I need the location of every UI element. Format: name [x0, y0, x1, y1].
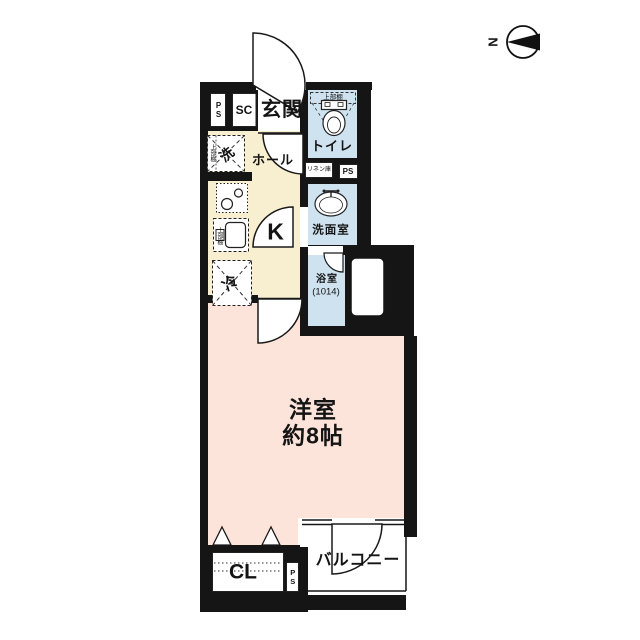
north-label: N — [487, 37, 500, 46]
hall-label: ホール — [252, 154, 294, 167]
wall-bottom — [308, 595, 406, 610]
balcony-label: バルコニー — [316, 553, 401, 569]
floor-plan: 玄関 SC PS 上部棚 トイレ リネン庫 PS 洗 上部棚 ホール K 上部棚… — [0, 0, 640, 640]
floor-plan-graphics — [0, 0, 640, 640]
toilet-icon — [322, 101, 347, 136]
wall-top-left — [200, 82, 256, 90]
washer-shelf-label: 上部棚 — [209, 144, 215, 162]
kitchen-shelf-label: 上部棚 — [216, 227, 222, 245]
toilet-label: トイレ — [311, 140, 353, 153]
kitchen-label: K — [267, 221, 285, 244]
genkan-label: 玄関 — [261, 100, 303, 120]
bathroom-label: 浴室 — [316, 275, 338, 285]
washroom-label: 洗面室 — [312, 225, 350, 237]
western-room-label: 洋室 — [289, 399, 337, 422]
stove-box — [217, 184, 248, 213]
wall-right-lower — [404, 336, 417, 537]
western-room-size-label: 約8帖 — [282, 425, 344, 448]
wall-washer-divider — [200, 172, 252, 181]
washroom-door-opening — [300, 207, 308, 247]
compass — [507, 26, 540, 58]
pipe-space-label-toilet: PS — [343, 168, 354, 176]
shoe-closet-label: SC — [236, 104, 253, 116]
wall-left — [200, 82, 208, 612]
bathroom-size-label: (1014) — [312, 287, 339, 297]
pipe-space-label-bottom: PS — [289, 568, 297, 586]
linen-closet-label: リネン庫 — [307, 167, 331, 173]
bathtub — [351, 258, 384, 316]
pipe-space-label-entrance: PS — [214, 101, 222, 119]
closet-label: CL — [229, 562, 257, 583]
toilet-shelf-label: 上部棚 — [323, 95, 343, 102]
